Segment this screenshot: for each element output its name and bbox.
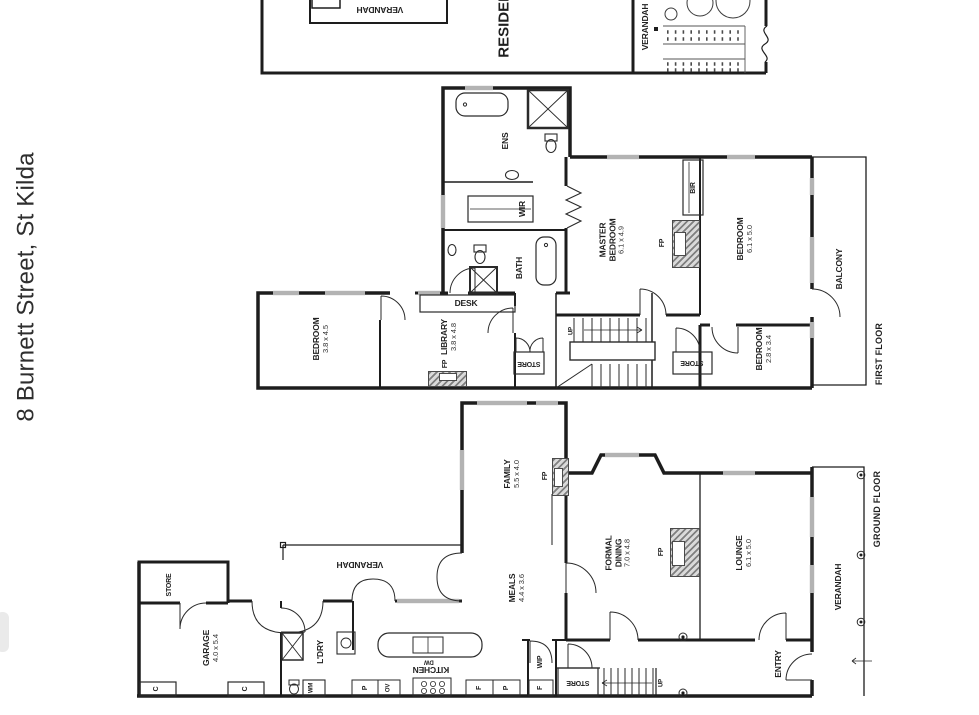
room-dims: 4.4 x 3.6	[518, 574, 526, 603]
room-dims: 3.8 x 4.5	[322, 318, 330, 361]
room-dims: 7.0 x 4.8	[623, 535, 631, 570]
residence-label: RESIDENCE	[497, 0, 514, 58]
room-master-bedroom: MASTER BEDROOM 6.1 x 4.9	[598, 219, 625, 262]
room-bedroom-right: BEDROOM 6.1 x 5.0	[736, 218, 754, 261]
room-dims: 6.1 x 4.9	[617, 219, 625, 262]
verandah-top-label: VERANDAH	[337, 559, 384, 569]
room-bedroom-left: BEDROOM 3.8 x 4.5	[312, 318, 330, 361]
cupboard-right-label: C	[242, 687, 250, 692]
room-meals: MEALS 4.4 x 3.6	[508, 574, 526, 603]
room-wip: WIP	[537, 656, 545, 669]
room-family: FAMILY 5.5 x 4.0	[503, 459, 521, 488]
store-garage-label: STORE	[166, 574, 174, 597]
store-mid-label: STORE	[518, 359, 541, 367]
ground-floor-doors	[180, 553, 812, 680]
room-laundry: L'DRY	[316, 640, 326, 664]
wm-label: WM	[309, 683, 316, 693]
stairs-up-label-ff: UP	[569, 327, 576, 335]
room-dims: 5.5 x 4.0	[513, 459, 521, 488]
site-verandah-box-label: VERANDAH	[357, 4, 404, 14]
store-hall-label: STORE	[567, 678, 590, 686]
first-floor-title: FIRST FLOOR	[874, 323, 884, 385]
room-library: LIBRARY 3.8 x 4.8	[440, 319, 458, 355]
page-title: 8 Burnett Street, St Kilda	[14, 152, 41, 421]
room-entry: ENTRY	[774, 650, 784, 678]
room-dims: 6.1 x 5.0	[745, 535, 753, 570]
ground-floor-walls	[137, 403, 864, 696]
store-right-label: STORE	[681, 358, 704, 366]
room-dims: 3.8 x 4.8	[450, 319, 458, 355]
fireplace-dining	[670, 528, 700, 577]
site-plan-garden	[654, 0, 750, 73]
room-wir: WIR	[518, 201, 528, 217]
floorplan-sheet: 8 Burnett Street, St Kilda VERANDAH RESI…	[0, 0, 979, 715]
ground-floor-fixtures	[140, 471, 872, 697]
first-floor-fixtures	[420, 90, 866, 385]
room-lounge: LOUNGE 6.1 x 5.0	[735, 535, 753, 570]
dw-label: DW	[424, 658, 434, 665]
room-ens: ENS	[501, 133, 511, 150]
fireplace-notch	[439, 373, 457, 381]
site-plan-walls	[262, 0, 768, 73]
fp-label-library: FP	[442, 360, 450, 369]
ground-floor-windows	[397, 401, 814, 603]
room-dims: 4.0 x 5.4	[212, 630, 220, 666]
ground-floor-title: GROUND FLOOR	[872, 471, 882, 547]
scan-artifact	[0, 612, 9, 652]
cupboard-left-label: C	[153, 687, 161, 692]
fp-label-dining: FP	[658, 548, 666, 557]
room-formal-dining: FORMAL DINING 7.0 x 4.8	[604, 535, 631, 570]
first-floor-windows	[273, 86, 814, 338]
bir-label: BIR	[690, 182, 698, 193]
first-floor-walls	[258, 88, 812, 388]
fp-label-family: FP	[542, 472, 550, 481]
fireplace-notch	[672, 541, 685, 566]
stairs-up-label-gf: UP	[659, 679, 666, 687]
site-verandah-side-label: VERANDAH	[641, 4, 651, 51]
fireplace-notch	[674, 232, 686, 256]
room-bath: BATH	[515, 257, 525, 279]
room-bedroom-small: BEDROOM 2.8 x 3.4	[755, 328, 773, 371]
oven-label: OV	[386, 684, 393, 692]
balcony-label: BALCONY	[835, 249, 845, 290]
pantry-right-label: P	[503, 686, 511, 690]
fireplace-library	[428, 371, 467, 387]
room-dims: 6.1 x 5.0	[746, 218, 754, 261]
pantry-left-label: P	[362, 686, 370, 690]
fridge-kitchen-label: F	[476, 686, 484, 690]
room-dims: 2.8 x 3.4	[765, 328, 773, 371]
ground-floor-stairs	[602, 668, 653, 696]
room-kitchen: KITCHEN	[413, 664, 449, 674]
fireplace-family	[552, 458, 569, 496]
room-garage: GARAGE 4.0 x 5.4	[202, 630, 220, 666]
desk-label: DESK	[455, 299, 478, 309]
fp-label-master: FP	[659, 239, 667, 248]
fireplace-master	[672, 220, 700, 268]
floorplan-linework	[0, 0, 979, 715]
fridge-wip-label: F	[537, 686, 545, 690]
fireplace-notch	[554, 468, 563, 487]
verandah-right-label: VERANDAH	[834, 564, 844, 611]
